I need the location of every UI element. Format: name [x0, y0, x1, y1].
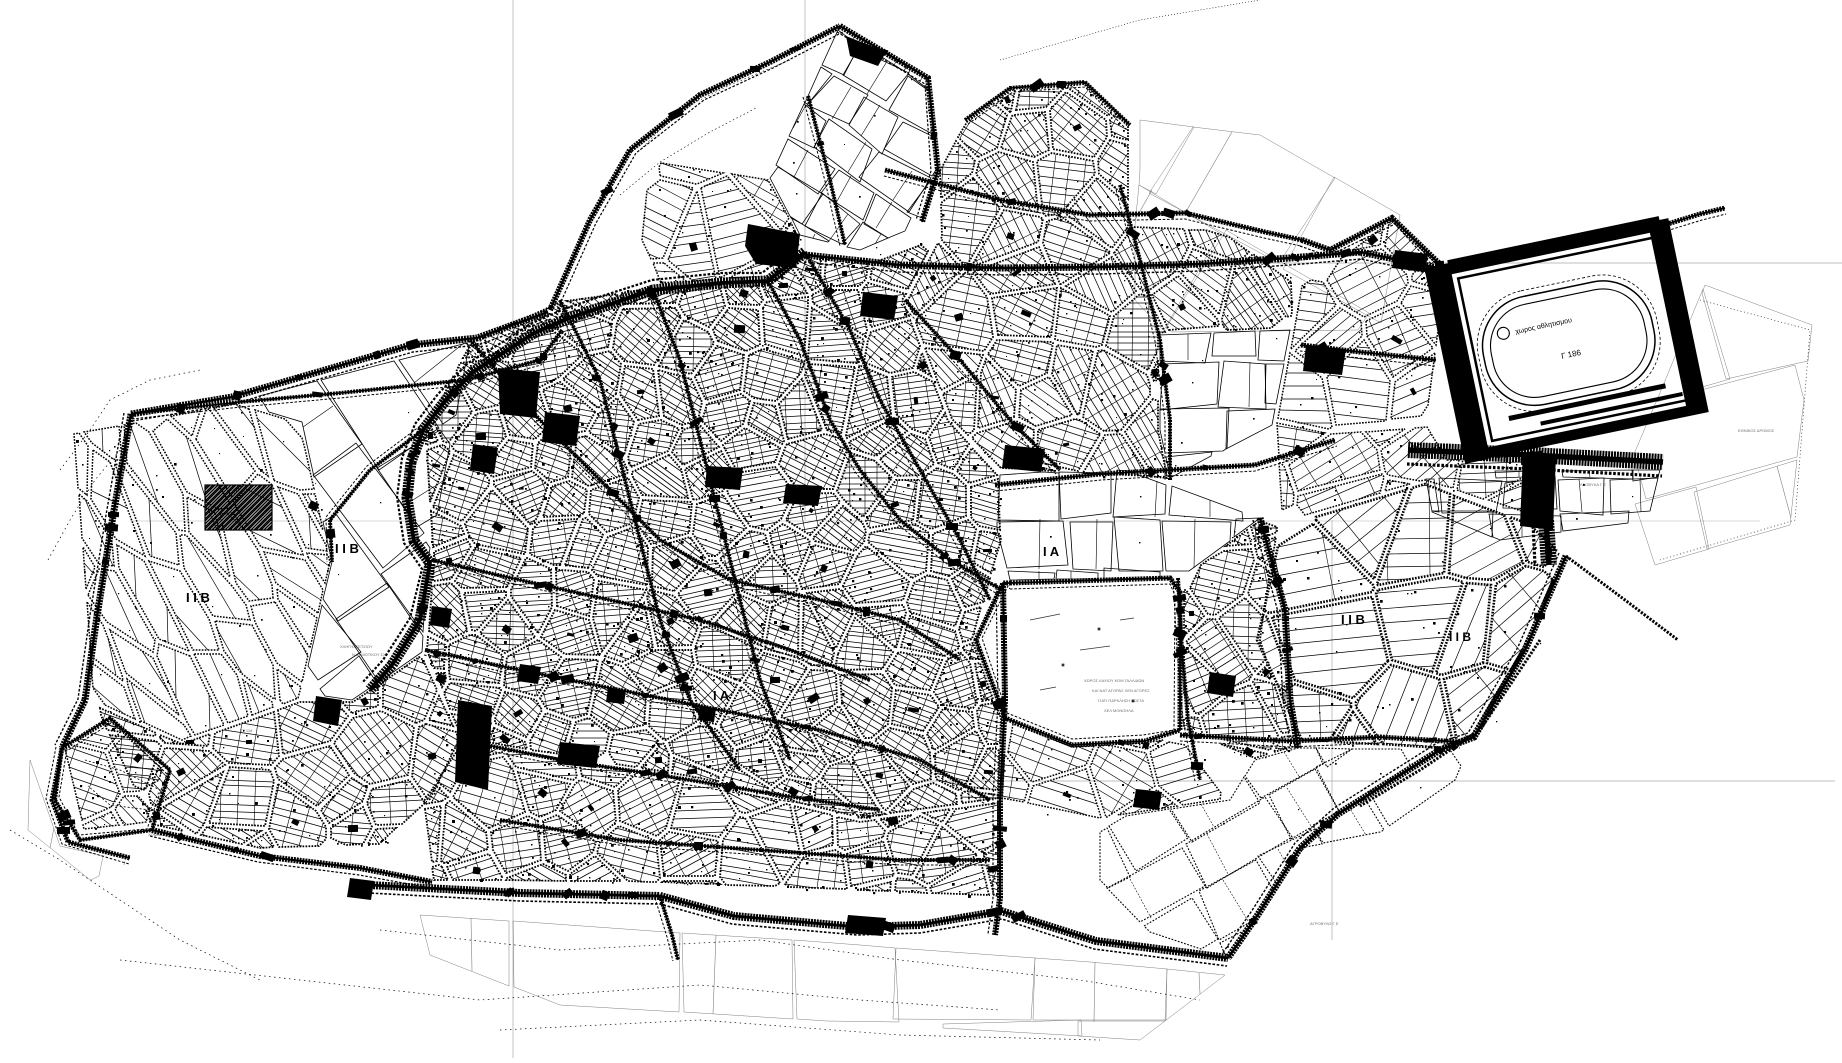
svg-text:I A: I A [1043, 544, 1060, 559]
svg-text:I I B: I I B [1449, 630, 1471, 644]
svg-text:ΧΟΜΒΕΣ ΤΗΣ: ΧΟΜΒΕΣ ΤΗΣ [148, 832, 174, 837]
svg-text:Ν ΔΗΜΟΤΙΚΟΥ ΣΧ: Ν ΔΗΜΟΤΙΚΟΥ ΣΧ [352, 652, 386, 657]
svg-text:ΚΑΙ ΝΑΤ ΑΓΟΡΑΣ ΧΕΝ ΑΓΟΡΕΣ: ΚΑΙ ΝΑΤ ΑΓΟΡΑΣ ΧΕΝ ΑΓΟΡΕΣ [1092, 688, 1150, 693]
svg-text:I I B: I I B [335, 541, 359, 556]
svg-text:ΑΓΡΟΒΥΛΟ Γ Ε: ΑΓΡΟΒΥΛΟ Γ Ε [1310, 921, 1339, 926]
svg-text:ΧΛΗΓΗΑΓΕΤΖΙΟΥ: ΧΛΗΓΗΑΓΕΤΖΙΟΥ [340, 644, 373, 649]
svg-text:I A: I A [713, 688, 730, 703]
svg-text:I I B: I I B [1341, 612, 1365, 627]
svg-text:ΤΤ 118: ΤΤ 118 [240, 728, 253, 733]
svg-text:ΧΕΛ ΜΟΝΟΗΛΑ: ΧΕΛ ΜΟΝΟΗΛΑ [1104, 708, 1134, 713]
svg-text:ΓΙΑΤΙ ΠΑΡΚΛΗΣΗ ΖΩΣΤΑ: ΓΙΑΤΙ ΠΑΡΚΛΗΣΗ ΖΩΣΤΑ [1098, 698, 1144, 703]
svg-text:ΕΘΝΙΚΟΣ ΔΡΟΜΟΣ: ΕΘΝΙΚΟΣ ΔΡΟΜΟΣ [1738, 428, 1775, 433]
svg-text:I I B: I I B [186, 590, 210, 605]
svg-text:ΛΑΟΒΥΚΑ Γ Ε: ΛΑΟΒΥΚΑ Γ Ε [1580, 482, 1606, 487]
svg-text:ΧΩΡΟΣ ΛΑΧΙΟΥ ΚΟΜ ΓΑΛΛΙΔΩΝ: ΧΩΡΟΣ ΛΑΧΙΟΥ ΚΟΜ ΓΑΛΛΙΔΩΝ [1084, 678, 1144, 683]
